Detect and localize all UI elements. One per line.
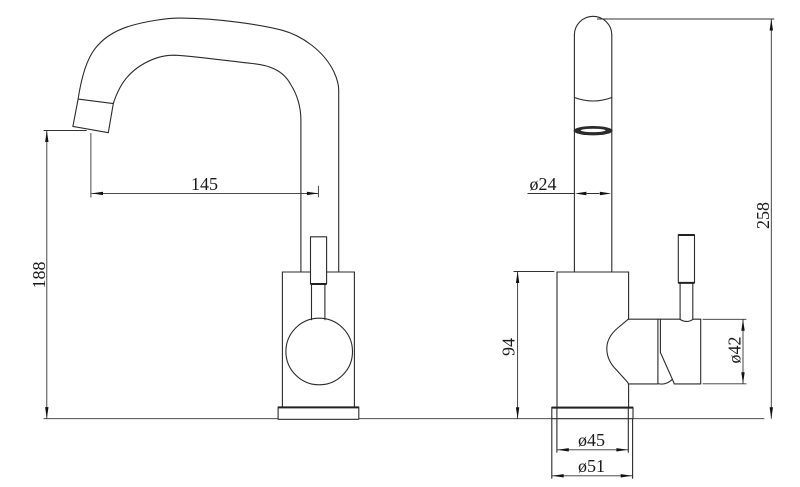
svg-text:188: 188 bbox=[29, 262, 49, 289]
svg-text:ø45: ø45 bbox=[578, 430, 605, 450]
svg-text:94: 94 bbox=[498, 338, 518, 356]
svg-text:ø24: ø24 bbox=[530, 174, 557, 194]
svg-text:ø42: ø42 bbox=[725, 337, 745, 364]
svg-text:145: 145 bbox=[191, 174, 218, 194]
svg-text:ø51: ø51 bbox=[578, 456, 605, 476]
svg-text:258: 258 bbox=[753, 202, 773, 229]
